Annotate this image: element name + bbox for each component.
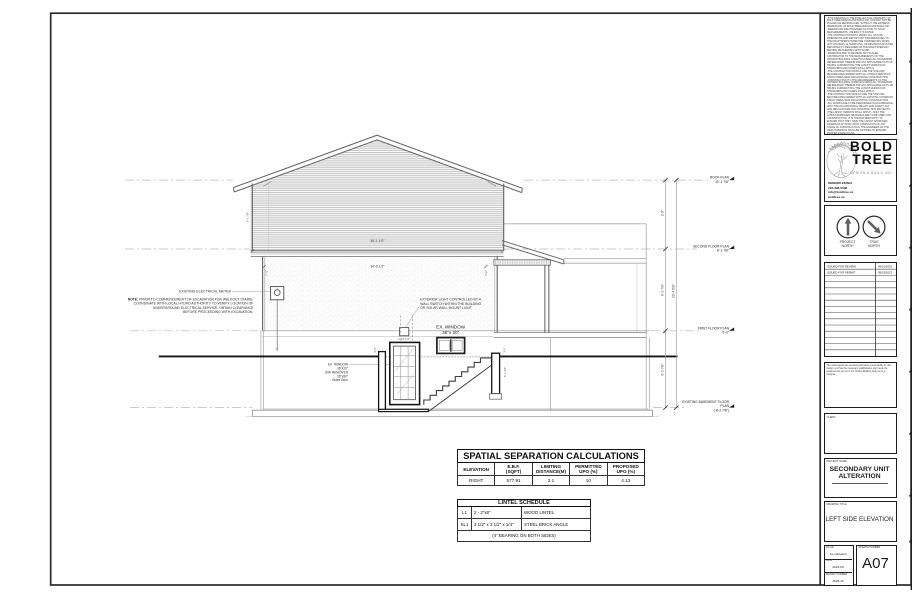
svg-text:5'-2 1/2": 5'-2 1/2" bbox=[503, 367, 507, 377]
svg-text:09/01/2023: 09/01/2023 bbox=[878, 264, 892, 268]
svg-text:8'-1 7/8": 8'-1 7/8" bbox=[245, 212, 249, 223]
svg-text:09/15/2023: 09/15/2023 bbox=[878, 270, 892, 274]
svg-text:36"x 20": 36"x 20" bbox=[442, 330, 459, 335]
svg-text:0'-0": 0'-0" bbox=[722, 331, 729, 335]
svg-text:3'-6": 3'-6" bbox=[373, 347, 377, 353]
svg-text:29'-4 5/8": 29'-4 5/8" bbox=[671, 283, 675, 298]
svg-text:2'-0": 2'-0" bbox=[661, 209, 665, 216]
svg-text:8'-1 7/8": 8'-1 7/8" bbox=[717, 249, 730, 253]
svg-text:36'-1 1/2": 36'-1 1/2" bbox=[370, 239, 385, 243]
svg-text:ISSUED FOR PERMIT: ISSUED FOR PERMIT bbox=[827, 270, 856, 274]
svg-text:ISSUED FOR REVIEW: ISSUED FOR REVIEW bbox=[827, 264, 856, 268]
svg-text:(-8'-2 7/8"): (-8'-2 7/8") bbox=[714, 408, 729, 412]
svg-text:3'-6": 3'-6" bbox=[503, 347, 507, 353]
svg-text:8'-1 7/8": 8'-1 7/8" bbox=[661, 283, 665, 296]
svg-text:EXISTING ELECTRICAL METER: EXISTING ELECTRICAL METER bbox=[179, 289, 231, 293]
svg-text:1'-10 1/2": 1'-10 1/2" bbox=[398, 337, 410, 341]
svg-text:7'-0": 7'-0" bbox=[484, 270, 488, 276]
svg-text:10'-1 7/8": 10'-1 7/8" bbox=[715, 180, 730, 184]
svg-text:Glass Door: Glass Door bbox=[332, 378, 349, 382]
svg-text:8'-2 7/8": 8'-2 7/8" bbox=[661, 363, 665, 376]
svg-text:BEFORE PROCEEDING WITH EXCAVAT: BEFORE PROCEEDING WITH EXCAVATION. bbox=[183, 310, 253, 314]
svg-text:7'-0": 7'-0" bbox=[265, 270, 269, 276]
svg-text:34'-6 1/2": 34'-6 1/2" bbox=[370, 265, 385, 269]
svg-text:OR SOLAR WALL MOUNT LIGHT: OR SOLAR WALL MOUNT LIGHT bbox=[420, 306, 472, 310]
